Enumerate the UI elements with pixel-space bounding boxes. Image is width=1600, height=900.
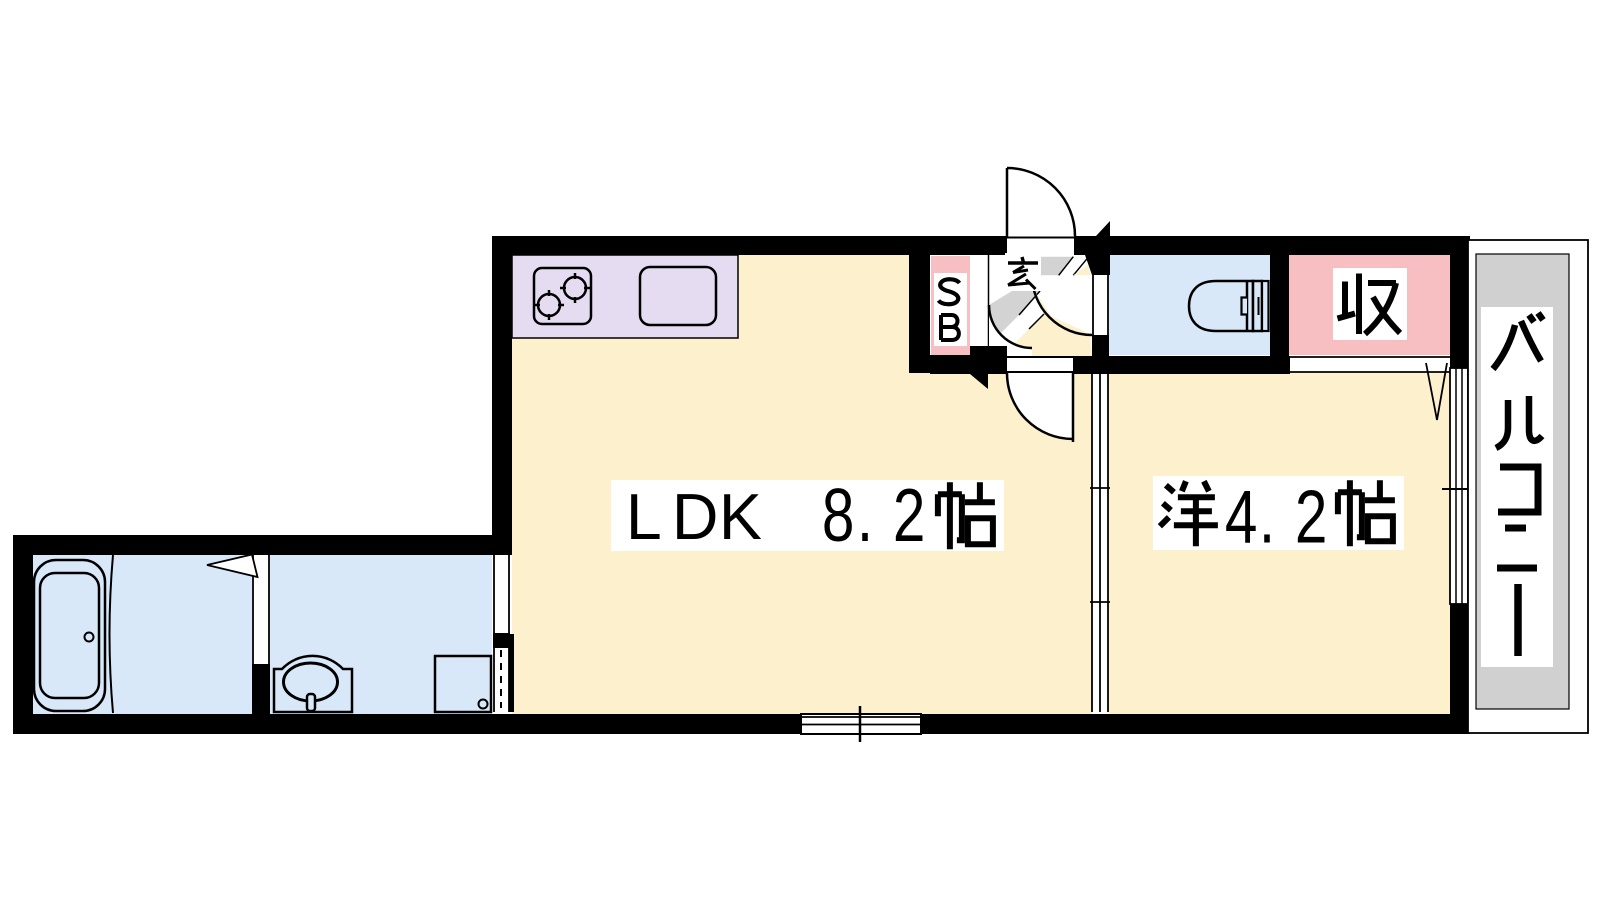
svg-text:.: . bbox=[1259, 475, 1275, 559]
svg-text:K: K bbox=[719, 481, 762, 553]
svg-text:4: 4 bbox=[1225, 475, 1258, 559]
svg-text:2: 2 bbox=[1295, 475, 1328, 559]
svg-text:D: D bbox=[672, 481, 719, 553]
svg-text:L: L bbox=[626, 481, 662, 553]
svg-text:2: 2 bbox=[893, 474, 926, 558]
svg-text:.: . bbox=[857, 474, 873, 558]
svg-text:8: 8 bbox=[822, 474, 855, 558]
